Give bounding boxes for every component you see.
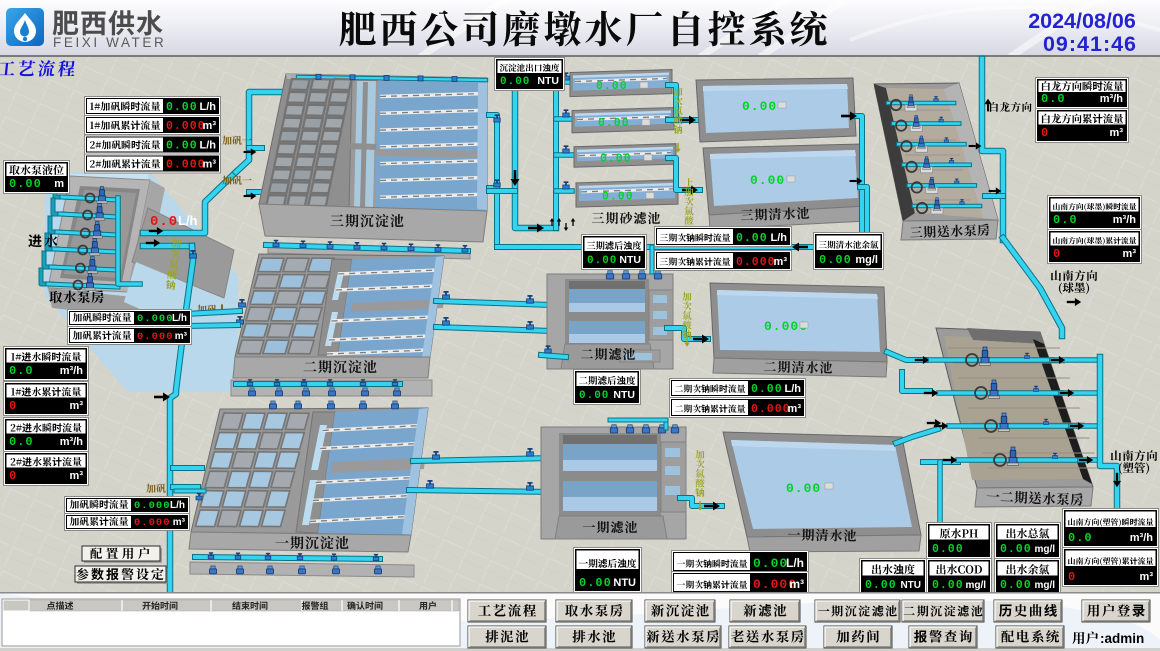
- svg-text:0.00: 0.00: [500, 76, 530, 88]
- svg-text:0.00: 0.00: [166, 101, 198, 114]
- svg-text:0.000: 0.000: [137, 313, 174, 325]
- svg-text:0.00: 0.00: [9, 177, 42, 191]
- svg-text:0.00: 0.00: [742, 99, 777, 114]
- svg-text:NTU: NTU: [900, 580, 921, 591]
- svg-text:0.00: 0.00: [753, 556, 788, 571]
- svg-text:0.000: 0.000: [166, 159, 206, 172]
- svg-text:0.00: 0.00: [598, 117, 630, 130]
- svg-text:0.00: 0.00: [786, 481, 821, 496]
- svg-text:mg/l: mg/l: [855, 254, 878, 266]
- svg-text:0.000: 0.000: [134, 517, 171, 529]
- svg-text:m³: m³: [70, 470, 84, 482]
- svg-text:0.00: 0.00: [579, 390, 609, 402]
- svg-text:FEIXI WATER: FEIXI WATER: [53, 35, 166, 50]
- svg-text:m³: m³: [789, 577, 804, 591]
- svg-text:0.00: 0.00: [865, 579, 897, 592]
- svg-text::admin: :admin: [1100, 631, 1144, 646]
- svg-text:0.00: 0.00: [736, 232, 768, 245]
- svg-text:m³/h: m³/h: [1113, 214, 1137, 226]
- svg-text:m³: m³: [203, 159, 217, 171]
- svg-text:0: 0: [1041, 126, 1049, 140]
- svg-text:0.00: 0.00: [932, 543, 964, 556]
- svg-text:0.0: 0.0: [9, 435, 34, 449]
- svg-text:mg/l: mg/l: [1034, 544, 1055, 555]
- svg-text:0.00: 0.00: [750, 173, 785, 188]
- svg-text:0: 0: [9, 469, 17, 483]
- svg-text:0.00: 0.00: [579, 576, 612, 590]
- svg-text:m³: m³: [70, 400, 84, 412]
- svg-text:0.00: 0.00: [932, 579, 964, 592]
- svg-text:0.00: 0.00: [596, 80, 628, 93]
- svg-text:L/h: L/h: [786, 556, 804, 570]
- svg-text:0.0: 0.0: [1068, 531, 1093, 545]
- svg-text:0: 0: [1068, 570, 1076, 584]
- svg-text:0: 0: [1053, 247, 1061, 261]
- svg-text:m³: m³: [203, 120, 217, 132]
- svg-text:0.00: 0.00: [819, 253, 852, 267]
- svg-text:0.000: 0.000: [134, 500, 171, 512]
- svg-text:NTU: NTU: [613, 389, 635, 401]
- svg-text:0.0: 0.0: [150, 214, 178, 230]
- svg-text:NTU: NTU: [537, 75, 559, 87]
- svg-text:0.0: 0.0: [1041, 92, 1066, 106]
- svg-text:L/h: L/h: [170, 500, 185, 511]
- svg-text:m³/h: m³/h: [1100, 93, 1124, 105]
- svg-text:L/h: L/h: [785, 383, 802, 395]
- svg-text:L/h: L/h: [178, 213, 198, 228]
- svg-text:m³: m³: [1110, 127, 1124, 139]
- svg-text:mg/l: mg/l: [1034, 580, 1055, 591]
- svg-text:L/h: L/h: [200, 101, 217, 113]
- svg-text:m³: m³: [774, 256, 788, 268]
- svg-text:0.00: 0.00: [166, 140, 198, 153]
- svg-text:m³/h: m³/h: [60, 436, 84, 448]
- svg-text:0.00: 0.00: [1000, 579, 1032, 592]
- svg-text:0.000: 0.000: [736, 256, 776, 269]
- svg-text:0.00: 0.00: [1000, 543, 1032, 556]
- svg-text:0.0: 0.0: [1053, 213, 1078, 227]
- svg-text:m³/h: m³/h: [1130, 532, 1154, 544]
- svg-text:NTU: NTU: [619, 254, 641, 266]
- svg-text:m³: m³: [175, 331, 188, 342]
- svg-text:L/h: L/h: [172, 313, 187, 324]
- svg-text:m³: m³: [1140, 571, 1154, 583]
- svg-text:NTU: NTU: [613, 577, 636, 589]
- svg-text:mg/l: mg/l: [965, 580, 986, 591]
- svg-text:m³: m³: [1123, 248, 1137, 260]
- svg-text:L/h: L/h: [771, 232, 788, 244]
- svg-text:09:41:46: 09:41:46: [1043, 32, 1137, 56]
- svg-text:L/h: L/h: [200, 140, 217, 152]
- svg-text:0.00: 0.00: [751, 383, 783, 396]
- svg-text:m: m: [54, 178, 64, 190]
- svg-text:m³: m³: [788, 403, 802, 415]
- svg-text:m³/h: m³/h: [60, 365, 84, 377]
- svg-text:0.00: 0.00: [600, 152, 632, 165]
- svg-text:2024/08/06: 2024/08/06: [1028, 9, 1136, 33]
- svg-text:m³: m³: [173, 517, 186, 528]
- svg-text:0: 0: [9, 399, 17, 413]
- svg-text:0.000: 0.000: [137, 331, 174, 343]
- svg-text:0.000: 0.000: [166, 120, 206, 133]
- svg-text:0.000: 0.000: [751, 403, 791, 416]
- svg-text:0.00: 0.00: [587, 255, 617, 267]
- svg-text:0.00: 0.00: [602, 191, 634, 204]
- svg-text:0.0: 0.0: [9, 364, 34, 378]
